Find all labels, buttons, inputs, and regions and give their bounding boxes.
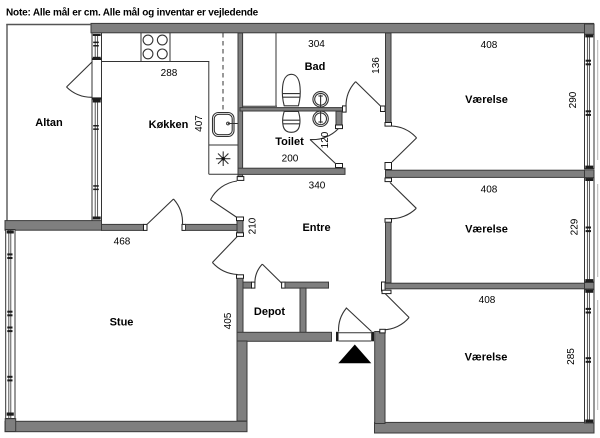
svg-text:Toilet: Toilet (275, 136, 304, 148)
svg-text:285: 285 (566, 348, 577, 365)
svg-text:408: 408 (481, 185, 498, 196)
svg-text:304: 304 (308, 39, 325, 50)
svg-text:229: 229 (570, 218, 581, 235)
svg-text:Note: Alle mål er cm. Alle mål: Note: Alle mål er cm. Alle mål og invent… (6, 7, 259, 19)
svg-text:Altan: Altan (35, 117, 63, 129)
svg-text:Stue: Stue (110, 317, 134, 329)
svg-text:340: 340 (309, 181, 326, 192)
svg-text:405: 405 (223, 312, 234, 329)
svg-text:210: 210 (248, 217, 259, 234)
svg-text:408: 408 (481, 40, 498, 51)
svg-text:Bad: Bad (305, 61, 326, 73)
svg-text:136: 136 (371, 57, 382, 74)
svg-text:Værelse: Værelse (465, 224, 508, 236)
svg-text:Depot: Depot (254, 306, 286, 318)
svg-text:290: 290 (568, 91, 579, 108)
svg-text:Værelse: Værelse (465, 94, 508, 106)
svg-text:407: 407 (194, 115, 205, 132)
svg-text:200: 200 (282, 154, 299, 165)
svg-text:408: 408 (479, 295, 496, 306)
svg-text:120: 120 (320, 131, 331, 148)
svg-text:Køkken: Køkken (149, 119, 189, 131)
svg-text:468: 468 (114, 237, 131, 248)
svg-text:Værelse: Værelse (465, 352, 508, 364)
svg-text:288: 288 (161, 68, 178, 79)
svg-text:Entre: Entre (302, 222, 330, 234)
